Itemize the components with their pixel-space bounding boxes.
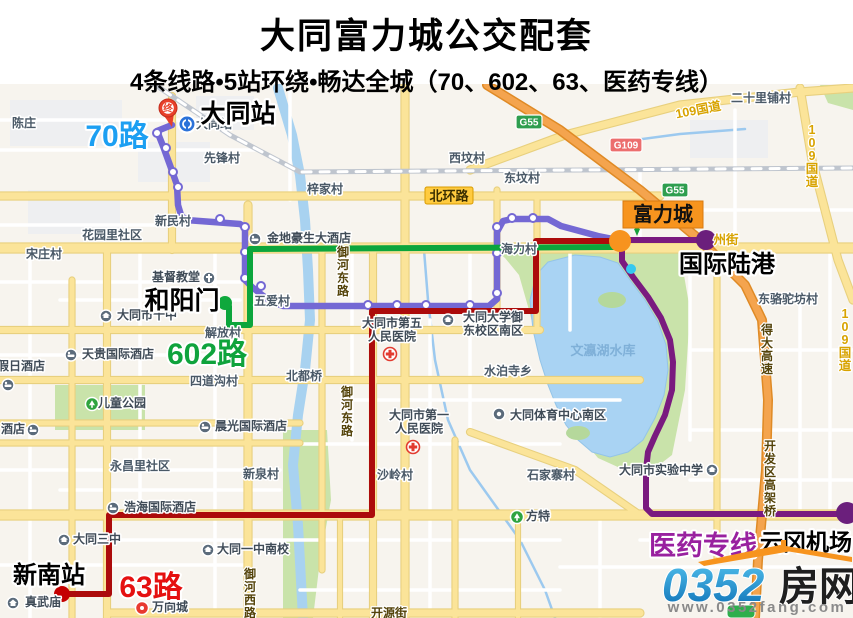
map-label: 大同站 <box>200 100 275 128</box>
route-stop <box>153 129 161 137</box>
route-stop <box>493 289 501 297</box>
header: 大同富力城公交配套 4条线路•5站环绕•畅达全城（70、602、63、医药专线） <box>0 0 853 84</box>
map-label: 大同市第一人民医院 <box>389 407 449 436</box>
route-stop <box>529 214 537 222</box>
road-badge-label: G109 <box>614 141 639 152</box>
map-label: 大同一中南校 <box>217 541 290 556</box>
map-label: 梓家村 <box>307 181 343 196</box>
temple-icon <box>7 597 19 609</box>
logo-url: www.0352fang.com <box>667 599 847 616</box>
route-stop <box>169 168 177 176</box>
map-label: 大同体育中心南区 <box>510 407 606 422</box>
hotel-icon <box>199 421 211 433</box>
map-label: 东骆驼坊村 <box>758 291 818 306</box>
map-label: 开源街 <box>371 605 407 618</box>
roadname-label: 北环路 <box>429 189 469 204</box>
map-label: 天贵国际酒店 <box>82 346 154 361</box>
metro-station-icon <box>179 116 196 133</box>
route-stop <box>162 144 170 152</box>
map-label: 晨光国际酒店 <box>215 418 287 433</box>
map-label: 石家寨村 <box>526 467 575 482</box>
road-badge-G55: G55 <box>662 183 688 197</box>
route-stop <box>493 223 501 231</box>
map-label: 和阳门 <box>144 286 219 315</box>
terminal-pin-label: 终 <box>162 102 173 114</box>
map-label: 陈庄 <box>12 115 36 130</box>
map-label: 北都桥 <box>286 368 323 383</box>
map-label: 国际陆港 <box>679 251 776 278</box>
map-label: 御河西路 <box>243 566 257 618</box>
stadium-icon <box>493 408 505 420</box>
map-label: 花园里社区 <box>82 227 142 242</box>
map-label: 大同市第五人民医院 <box>362 315 422 344</box>
map-label: 五爱村 <box>254 293 290 308</box>
map-label: 文瀛湖水库 <box>570 343 635 358</box>
hotel-icon <box>249 233 261 245</box>
map-label: 海力村 <box>501 241 537 256</box>
map-label: 方特 <box>526 508 550 523</box>
hotel-icon <box>107 502 119 514</box>
hotel-icon <box>2 379 14 391</box>
map-label: 新南站 <box>13 561 85 589</box>
map-label: 大同市实验中学 <box>619 462 703 477</box>
city-block <box>690 120 768 158</box>
station-dot <box>609 230 631 252</box>
route-stop <box>241 223 249 231</box>
school-icon <box>58 534 70 546</box>
park-icon <box>511 511 524 524</box>
map-label: 602路 <box>167 338 248 371</box>
map-label: 新泉村 <box>243 466 279 481</box>
hotel-icon <box>27 424 39 436</box>
map-label: 州街 <box>712 232 739 247</box>
map-label: 开发区高架桥 <box>763 439 777 518</box>
school-icon <box>202 544 214 556</box>
map-label: 西坟村 <box>449 150 485 165</box>
park-icon <box>86 398 99 411</box>
route-stop <box>257 282 265 290</box>
fuli-label: 富力城 <box>633 202 693 226</box>
church-icon <box>203 272 215 284</box>
page: 大同富力城公交配套 4条线路•5站环绕•畅达全城（70、602、63、医药专线）… <box>0 0 853 618</box>
school-icon <box>706 464 718 476</box>
school-icon <box>442 314 454 326</box>
school-icon <box>100 310 112 322</box>
map-label: 基督教堂 <box>151 269 200 284</box>
logo-chimney <box>781 540 786 549</box>
page-subtitle: 4条线路•5站环绕•畅达全城（70、602、63、医药专线） <box>0 62 853 97</box>
hotel-icon <box>65 349 77 361</box>
hospital-icon <box>407 441 420 454</box>
fuli-label-box: 富力城 <box>623 201 703 228</box>
map-label: 新民村 <box>155 213 191 228</box>
map-label: 宋庄村 <box>26 246 62 261</box>
map-label: 沙岭村 <box>377 467 413 482</box>
map-label: 真武庙 <box>25 594 61 609</box>
map-label: 金地豪生大酒店 <box>266 230 351 245</box>
map-label: 永昌里社区 <box>109 458 170 473</box>
road-badge-G55: G55 <box>516 115 542 129</box>
road-badge-label: G55 <box>666 186 685 197</box>
route-stop <box>466 301 474 309</box>
route-stop <box>216 215 224 223</box>
map-label: 御河东路 <box>340 384 354 438</box>
map-label: 先锋村 <box>204 150 240 165</box>
map-label: 假日酒店 <box>0 358 45 373</box>
map-label: 东坟村 <box>504 170 540 185</box>
map-label: 大同大学御东校区南区 <box>463 309 523 338</box>
road-badge-G109: G109 <box>610 138 642 152</box>
map-label: 酒店 <box>1 421 25 436</box>
map-label: 四道沟村 <box>190 373 238 388</box>
map-label: 儿童公园 <box>97 395 146 410</box>
map-label: 得大高速 <box>760 322 773 376</box>
route-stop <box>508 214 516 222</box>
map-label: 70路 <box>85 120 149 153</box>
map-label: 御河东路 <box>336 244 350 298</box>
map-label: 水泊寺乡 <box>484 363 532 378</box>
route-stop <box>393 301 401 309</box>
route-stop <box>422 301 430 309</box>
station-dot <box>218 296 232 310</box>
map-label: 63路 <box>119 571 183 604</box>
route-stop <box>174 183 182 191</box>
hospital-icon <box>384 348 397 361</box>
route-stop <box>364 301 372 309</box>
map-label: 大同三中 <box>73 531 121 546</box>
map-label: 浩海国际酒店 <box>124 499 196 514</box>
page-title: 大同富力城公交配套 <box>0 8 853 59</box>
roadname-box: 北环路 <box>425 187 473 204</box>
station-dot <box>626 264 636 274</box>
lake-island <box>598 292 626 308</box>
lake-island <box>566 426 590 440</box>
road-badge-label: G55 <box>520 118 539 129</box>
